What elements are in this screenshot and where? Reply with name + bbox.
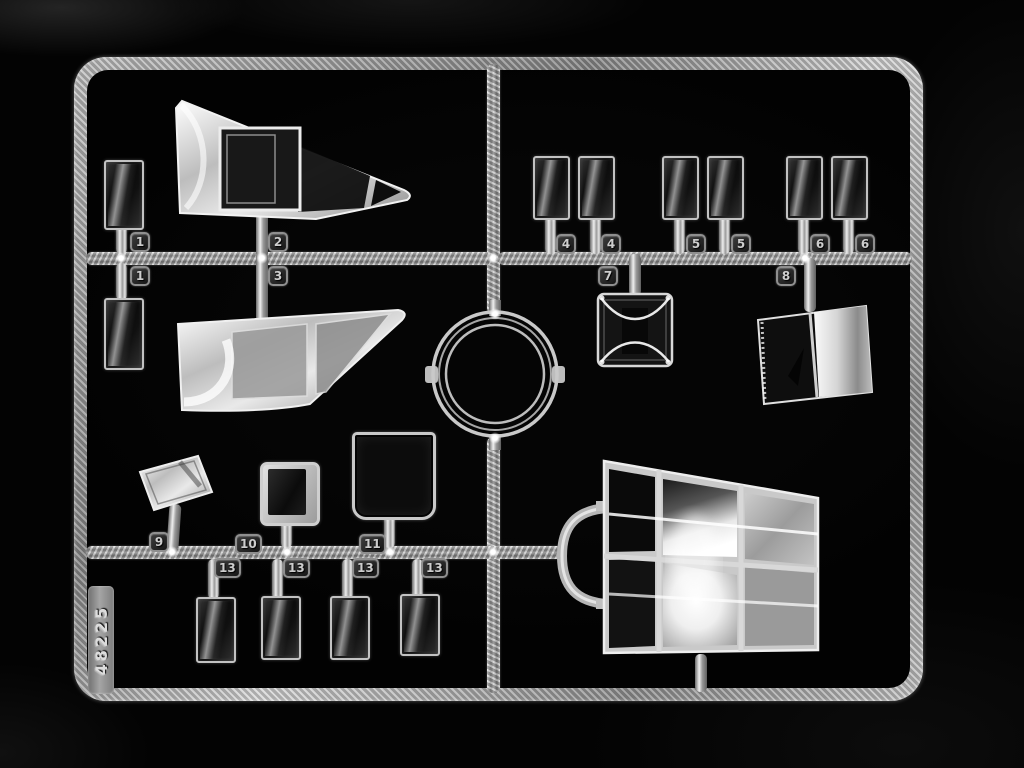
glare	[108, 302, 140, 366]
gate-sparkle	[115, 252, 127, 264]
part-cabin-window-2	[578, 156, 615, 220]
glare	[265, 600, 297, 656]
gate-stem	[590, 216, 601, 254]
sprue-photo: 48225	[0, 0, 1024, 768]
window-pane	[268, 469, 306, 515]
gate-sparkle	[487, 546, 499, 558]
gate-stem	[545, 216, 556, 254]
part-tag: 4	[556, 234, 576, 254]
glare	[790, 160, 819, 216]
part-ring	[425, 300, 565, 450]
runner-vertical-top	[487, 64, 500, 314]
gate-stem	[719, 216, 730, 254]
part-tag: 13	[283, 558, 310, 578]
gate-sparkle	[281, 546, 293, 558]
gate-sparkle	[256, 252, 268, 264]
part-nose-glazing	[552, 448, 852, 694]
part-tag: 6	[855, 234, 875, 254]
glare	[835, 160, 864, 216]
part-cabin-window-3	[662, 156, 699, 220]
part-tag: 5	[686, 234, 706, 254]
part-tag: 5	[731, 234, 751, 254]
part-side-window-2	[104, 298, 144, 370]
part-tag: 2	[268, 232, 288, 252]
glare	[666, 160, 695, 216]
gate-sparkle	[487, 252, 499, 264]
part-tag: 4	[601, 234, 621, 254]
part-cabin-window-1	[533, 156, 570, 220]
part-side-window-1	[104, 160, 144, 230]
part-quarter-window	[128, 446, 223, 556]
part-bottom-window-2	[261, 596, 301, 660]
part-cabin-window-5	[786, 156, 823, 220]
part-bottom-window-4	[400, 594, 440, 656]
part-tag: 1	[130, 266, 150, 286]
gate-sparkle	[489, 308, 501, 320]
glare	[108, 164, 140, 226]
part-tag: 7	[598, 266, 618, 286]
part-tag: 10	[235, 534, 262, 554]
part-tag: 8	[776, 266, 796, 286]
part-tag: 3	[268, 266, 288, 286]
gate-stem	[272, 559, 283, 599]
part-cabin-window-4	[707, 156, 744, 220]
part-tag: 13	[421, 558, 448, 578]
glare	[200, 601, 232, 659]
part-tag: 1	[130, 232, 150, 252]
part-bottom-window-1	[196, 597, 236, 663]
part-tag: 13	[352, 558, 379, 578]
gate-sparkle	[384, 546, 396, 558]
gate-stem	[674, 216, 685, 254]
glare	[334, 600, 366, 656]
part-square-window-large	[352, 432, 436, 520]
part-tag: 6	[810, 234, 830, 254]
part-canopy-lower	[168, 252, 418, 416]
gate-sparkle	[166, 546, 178, 558]
mold-number-label: 48225	[88, 586, 114, 694]
part-tag: 13	[214, 558, 241, 578]
gate-stem	[116, 263, 127, 300]
part-bottom-window-3	[330, 596, 370, 660]
gate-sparkle	[799, 252, 811, 264]
gate-sparkle	[489, 432, 501, 444]
glare	[404, 598, 436, 652]
part-canopy-upper	[168, 92, 418, 260]
runner-vertical-bottom	[487, 437, 500, 693]
glare	[537, 160, 566, 216]
part-cabin-window-6	[831, 156, 868, 220]
part-windscreen	[748, 256, 878, 406]
part-square-window-small	[260, 462, 320, 526]
gate-stem	[843, 216, 854, 254]
glare	[711, 160, 740, 216]
gate-stem	[798, 216, 809, 254]
part-tag: 11	[359, 534, 386, 554]
glare	[582, 160, 611, 216]
